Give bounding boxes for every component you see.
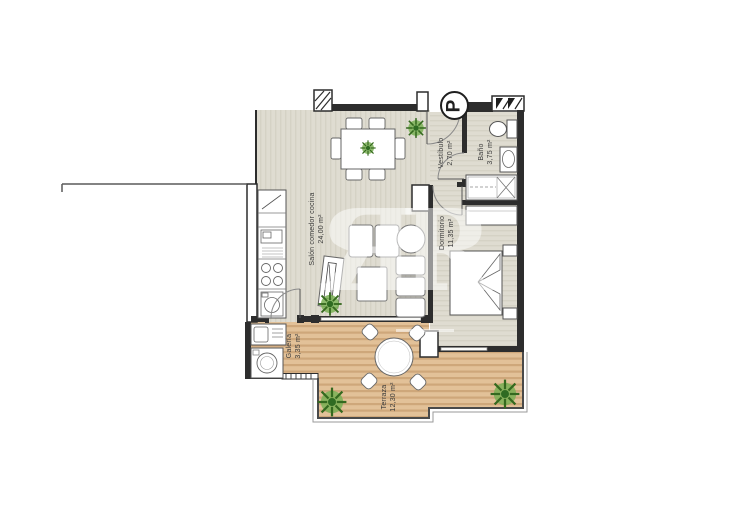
kitchen-counter	[258, 190, 286, 318]
chair	[346, 118, 362, 129]
door-jamb-terrace-left	[311, 315, 319, 323]
round-table	[375, 338, 413, 376]
plant-icon	[491, 380, 520, 409]
column-block	[412, 185, 429, 211]
chair	[395, 138, 405, 159]
chair	[331, 138, 341, 159]
nightstand	[503, 245, 517, 256]
plant-icon	[360, 140, 375, 155]
wall-vestibulo-bano	[462, 112, 467, 153]
wall-galeria-left	[245, 322, 251, 379]
wall-bano-bottom	[462, 200, 517, 205]
wall-left-thin	[255, 110, 257, 184]
entrance-symbol: P	[440, 91, 469, 120]
round-chair	[397, 225, 425, 253]
boundary-line	[62, 184, 247, 192]
chair	[369, 169, 385, 180]
wardrobe	[466, 206, 517, 225]
nightstand	[503, 308, 517, 319]
toilet	[490, 120, 518, 138]
washbasin	[500, 147, 517, 172]
dorm-window-glazing	[441, 348, 487, 351]
galeria-vent	[282, 374, 318, 380]
floor-plan: ЯR P Salón comedor cocina 24,00 m² Vestí…	[0, 0, 756, 528]
wall-right	[517, 110, 524, 352]
laundry-sink	[251, 324, 286, 345]
plant-icon	[318, 388, 347, 417]
plant-icon	[318, 292, 341, 315]
bathtub	[466, 175, 517, 200]
floor-plan-drawing	[0, 0, 756, 528]
coffee-table	[357, 267, 387, 301]
plant-icon	[406, 118, 426, 138]
washing-machine	[251, 348, 283, 378]
wall-left	[247, 184, 257, 322]
sliding-door-glazing	[321, 318, 421, 321]
chair	[369, 118, 385, 129]
chair	[346, 169, 362, 180]
entrance-jamb-block	[417, 92, 428, 111]
entrance-symbol-letter: P	[444, 99, 466, 112]
